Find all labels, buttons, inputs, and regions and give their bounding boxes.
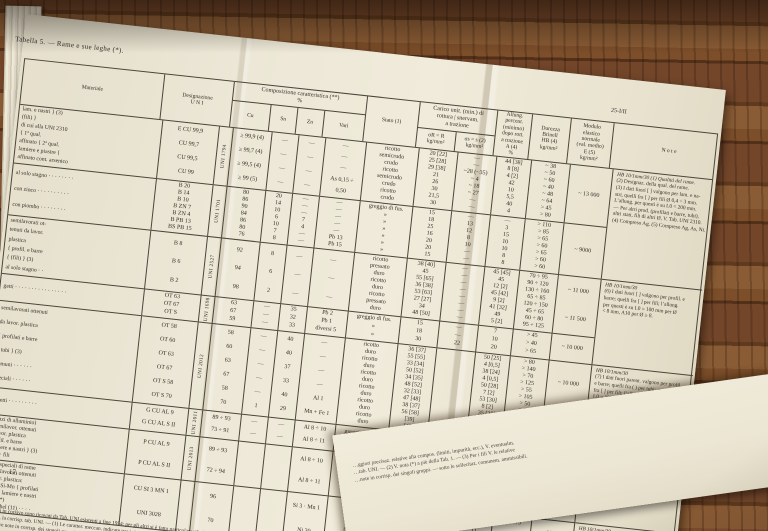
cell-line: —: [319, 354, 326, 362]
cell-line: 70: [220, 400, 227, 408]
cell-durezza: ~ 38~ 50~ 60~ 40~ 48~ 64> 45> 80: [526, 160, 571, 222]
cell-line: —: [305, 168, 312, 176]
cell-line: —: [259, 348, 266, 356]
cell-line: 22: [453, 341, 460, 349]
cell-sigR: 38 [40]4555 [65]36 [38]53 [63]27 [27]344…: [402, 259, 447, 321]
cell-line: »: [370, 332, 374, 339]
cell-line: 1: [254, 403, 258, 410]
cell-line: ~ 11 000: [567, 287, 589, 296]
cell-line: —: [294, 272, 301, 280]
cell-sigS: ——~28 (~35)~ 4~ 18~ 27——: [452, 152, 497, 214]
cell-cu: 929498: [216, 238, 261, 300]
cell-line: 18: [416, 328, 423, 336]
cell-line: 4: [507, 208, 511, 215]
cell-desig: B 8B 6B 2: [145, 231, 208, 295]
cell-line: »: [371, 324, 375, 331]
cell-line: —: [260, 334, 267, 342]
cell-line: Al 1: [312, 396, 323, 404]
cell-line: 8: [271, 251, 275, 258]
cell-desig: OT 58OT 60OT 63OT 67OT S 58OT S 70: [133, 316, 199, 408]
cell-line: 92: [236, 247, 243, 255]
cell-line: 73 ÷ 91: [211, 427, 230, 436]
cell-line: ≥ 99 (5): [237, 175, 257, 184]
cell-line: 30: [430, 200, 437, 208]
page-mark: 25-I/II: [611, 108, 627, 116]
cell-sigR: 20 [22]25 [28]29 [38]21263021,530: [414, 148, 459, 210]
header-line: Sn: [280, 116, 287, 123]
header-line: kg/mm²: [426, 138, 444, 146]
cell-line: —: [318, 368, 325, 376]
cell-line: OT 60: [159, 337, 175, 346]
header-line: kg/mm²: [465, 143, 483, 151]
cell-line: ~ 11 500: [564, 315, 586, 324]
cell-line: 59: [229, 316, 236, 324]
cell-line: 67: [230, 308, 237, 316]
uni-number: UNI 1794: [219, 144, 228, 169]
cell-line: 98: [232, 284, 239, 292]
cell-line: BS PB 15: [168, 223, 192, 233]
cell-line: —: [330, 257, 337, 265]
cell-line: 40: [285, 351, 292, 359]
cell-line: OT S 70: [151, 392, 172, 401]
cell-line: —: [257, 362, 264, 370]
uni-number: UNI 1698: [202, 297, 211, 322]
cell-line: G CU AL S II: [141, 419, 175, 430]
cell-line: 89 ÷ 93: [208, 446, 227, 455]
cell-line: semilavorati ottenuti: [1, 305, 48, 317]
header-line: Stato (1): [382, 117, 402, 125]
cell-line: 15: [424, 251, 431, 259]
cell-line: —: [326, 294, 333, 302]
cell-cu: 80869084868076: [222, 187, 266, 242]
uni-number: UNI 1701: [213, 199, 222, 224]
col-header-allungamento: Allung.percent.(minimo)dopo rott.a trazi…: [493, 111, 533, 159]
cell-line: As 0,15 ÷: [330, 175, 354, 184]
cell-line: in getti · · · · · · · · ·: [0, 397, 37, 409]
cell-modulo: ~ 11 000~ 11 500: [553, 275, 602, 337]
cell-line: Al 8 ÷ 11: [298, 477, 321, 486]
cell-line: duro: [369, 305, 381, 313]
cell-zn: 353233: [278, 304, 308, 333]
cell-line: Al 8 ÷ 10: [300, 456, 323, 465]
cell-line: ≥ 99,5 (4): [237, 161, 261, 171]
cell-line: Pb 2: [322, 310, 334, 318]
cell-line: OT S 58: [153, 378, 174, 387]
note-block: HB 10/1mm/30(6) I dati fuori [ ] valgono…: [592, 280, 701, 376]
cell-line: > 60: [534, 263, 546, 271]
cell-vari: Al 8 ÷ 10Al 8 ÷ 11: [288, 447, 334, 495]
cell-mat: semilavorati ottenutida lavor. plastica{…: [0, 301, 142, 402]
cell-line: ~ 10 000: [561, 344, 583, 353]
cell-line: con piombo · · · · · · · ·: [12, 202, 66, 215]
cell-desig: E CU 99,9CU 99,7CU 99,5CU 99: [157, 120, 220, 184]
cell-line: Ni 30: [297, 527, 311, 531]
cell-modulo: ~ 10 000: [550, 334, 596, 365]
cell-line: 35: [290, 307, 297, 315]
cell-vari: —————Pb 13Pb 15: [314, 197, 360, 252]
cell-line: { (fili) } (3): [6, 255, 33, 265]
cell-line: 29: [279, 406, 286, 414]
cell-cu: ≥ 99,9 (4)≥ 99,7 (4)≥ 99,5 (4)≥ 99 (5): [228, 128, 273, 190]
cell-line: 76: [238, 231, 245, 239]
cell-line: —: [307, 155, 314, 163]
cell-sn: ——: [239, 415, 269, 444]
photo-scene: Tabella 5. — Rame e sue leghe (*). 25-I/…: [0, 0, 768, 531]
cell-line: —: [277, 179, 284, 187]
cell-line: 30: [415, 336, 422, 344]
header-line: Materiale: [81, 85, 103, 94]
page-title: Tabella 5. — Rame e sue leghe (*).: [15, 35, 124, 55]
cell-modulo: ~ 13 000: [565, 165, 614, 227]
cell-line: 48 [50]: [412, 309, 430, 318]
cell-line: B 6: [171, 259, 180, 267]
header-line: Vari: [339, 122, 349, 129]
cell-line: 0,50: [335, 187, 346, 195]
cell-line: 6: [269, 269, 273, 276]
cell-line: 67: [223, 372, 230, 380]
cell-line: 8: [272, 235, 276, 242]
cell-line: B 8: [173, 240, 182, 248]
cell-line: —: [292, 290, 299, 298]
cell-line: —: [263, 304, 270, 312]
cell-line: 72 ÷ 94: [206, 467, 225, 476]
cell-line: a trazione: [445, 121, 469, 130]
cell-line: —: [342, 143, 349, 151]
header-line: U N I: [190, 100, 203, 108]
cell-line: 94: [234, 265, 241, 273]
cell-line: 40: [281, 392, 288, 400]
cell-line: { tubi } (3): [0, 347, 22, 357]
cell-line: —: [262, 320, 269, 328]
cell-line: —: [455, 325, 462, 333]
cell-line: comuni · · · · · ·: [0, 361, 32, 372]
cell-line: —: [316, 382, 323, 390]
cell-line: al solo stagno · · · · · · · ·: [15, 169, 73, 182]
cell-vari: Si 3 · Mn 1Ni 30: [282, 492, 328, 531]
cell-line: CU 99: [178, 169, 195, 178]
cell-line: —: [328, 276, 335, 284]
cell-line: speciali · · · · · ·: [0, 375, 31, 386]
cell-line: 40: [287, 337, 294, 345]
cell-line: —: [454, 333, 461, 341]
cell-cu: 636759: [213, 297, 255, 327]
cell-line: OT 58: [161, 323, 177, 332]
cell-line: 60: [226, 344, 233, 352]
cell-line: 8: [501, 260, 505, 267]
uni-number: UNI 2527: [207, 254, 216, 279]
cell-line: 5 [2]: [490, 318, 502, 326]
cell-line: 63: [231, 300, 238, 308]
header-line: kg/mm²: [539, 144, 557, 152]
cell-line: %: [297, 98, 303, 105]
cell-line: ~ 13 000: [578, 191, 600, 200]
uni-number: UNI 2012: [196, 354, 205, 379]
cell-line: —: [250, 431, 257, 439]
cell-line: 15: [416, 320, 423, 328]
cell-line: —: [463, 256, 470, 264]
cell-line: 33: [288, 323, 295, 331]
cell-stato: ricottopressatoduroricottoduroricottopre…: [349, 253, 408, 316]
cell-line: con zinco · · · · · · · · · ·: [14, 186, 70, 199]
cell-line: > 40: [525, 340, 537, 348]
cell-line: —: [468, 204, 475, 212]
cell-line: CU 99,5: [177, 155, 198, 164]
cell-line: 63: [224, 358, 231, 366]
cell-sigS: —1312810——: [447, 211, 491, 266]
cell-line: —: [296, 253, 303, 261]
cell-line: —: [456, 314, 463, 322]
cell-line: —: [280, 152, 287, 160]
cell-line: plastica: [8, 236, 26, 245]
uni-number: UNI 2011: [190, 410, 199, 434]
header-line: Zn: [307, 119, 314, 126]
col-header-designazione: DesignazioneU N I: [160, 74, 234, 126]
cell-line: ~ 9000: [574, 246, 591, 255]
cell-line: da lavor. plastica: [0, 319, 38, 330]
cell-line: —: [262, 312, 269, 320]
cell-sigS: ————————: [440, 263, 485, 325]
cell-stato: greggio di fus.»»»»»»: [355, 201, 413, 257]
cell-durezza: 70 ÷ 9590 ÷ 120130 ÷ 16065 ÷ 85120 ÷ 150…: [514, 271, 559, 333]
cell-line: 96: [210, 493, 217, 501]
uni-number: UNI 2013: [186, 446, 195, 471]
cell-sigR: 151830: [399, 317, 441, 347]
cell-line: 33: [282, 378, 289, 386]
cell-line: ≥ 99,9 (4): [240, 133, 264, 143]
cell-desig: P CU AL 9P CU AL S II: [125, 429, 186, 479]
cell-line: UNI 3028: [136, 510, 161, 520]
cell-line: getti · · · · · · · · · · · · · · · ·: [3, 284, 67, 298]
cell-line: —: [276, 434, 283, 442]
note-block: HB 10/1mm/30 (1) Qualità del rame.(2) De…: [602, 169, 714, 290]
cell-line: 7: [493, 329, 497, 336]
cell-cu: 89 ÷ 9372 ÷ 94: [196, 437, 240, 485]
cell-stato: ricottosemicrudocrudoricottosemicrudocru…: [361, 142, 420, 205]
cell-line: 58: [221, 386, 228, 394]
col-header-vari: Vari: [322, 111, 365, 141]
col-header-cu: Cu: [230, 101, 272, 131]
cell-line: »: [380, 246, 384, 253]
cell-line: Si 3 · Mn 1: [292, 502, 320, 512]
cell-line: 58: [227, 330, 234, 338]
col-header-zn: Zn: [296, 108, 326, 137]
cell-cu: 89 ÷ 9373 ÷ 91: [200, 410, 242, 440]
cell-zn: [256, 489, 288, 531]
cell-durezza: > 110> 85> 65> 60> 65> 60> 60: [520, 219, 564, 274]
cell-line: Al 8 ÷ 10: [303, 425, 326, 434]
cell-line: 95 ÷ 125: [522, 321, 544, 330]
col-header-durezza: DurezzaBrinellHB (4)kg/mm²: [528, 114, 572, 163]
cell-line: P CU AL 9: [143, 439, 170, 449]
cell-line: E CU 99,9: [177, 126, 203, 136]
cell-line: crudo: [380, 194, 394, 202]
cell-line: OT S: [164, 309, 177, 317]
col-header-carico: Carico unit. (min.) dirottura | snervam.…: [416, 102, 498, 155]
header-line: Cu: [247, 112, 254, 119]
cell-line: 70: [207, 518, 214, 526]
cell-sigS: ——22: [437, 321, 479, 351]
cell-line: P CU AL S II: [138, 460, 171, 470]
cell-line: 2: [267, 288, 271, 295]
cell-line: ~ 10 000: [557, 380, 579, 389]
cell-line: Pb 1: [321, 318, 333, 326]
cell-line: 10: [491, 337, 498, 345]
cell-line: OT 67: [156, 365, 172, 374]
header-line: %: [508, 150, 513, 157]
cell-allung: 71020: [476, 326, 514, 356]
cell-line: { profilati e barre: [0, 333, 38, 344]
cell-line: CU SI 3 MN 1: [133, 485, 169, 496]
cell-line: 20: [490, 345, 497, 353]
cell-line: Mn + Fe 1: [304, 409, 330, 419]
cell-line: —: [278, 166, 285, 174]
cell-vari: ———: [308, 248, 355, 310]
cell-line: Pb 15: [328, 241, 343, 249]
cell-line: —: [341, 154, 348, 162]
cell-line: —: [340, 165, 347, 173]
fold-text-line: …note in corrisp. dei singoli gruppi. — …: [354, 418, 768, 485]
cell-line: —: [308, 141, 315, 149]
cell-desig: B 20B 14B 10B ZN 7B ZN 4B PB 13BS PB 15: [151, 179, 213, 236]
cell-line: Al 8 ÷ 11: [302, 437, 325, 446]
cell-line: 37: [284, 364, 291, 372]
page-number: 17.: [9, 468, 18, 476]
cell-line: —: [254, 389, 261, 397]
cell-line: —: [278, 422, 285, 430]
cell-line: > 80: [539, 212, 551, 220]
cell-line: B 2: [169, 277, 178, 285]
cell-line: > 45: [526, 332, 538, 340]
cell-line: —: [281, 138, 288, 146]
cell-durezza: > 45> 40> 65: [511, 329, 553, 359]
cell-line: —: [321, 340, 328, 348]
cell-modulo: ~ 9000: [559, 223, 607, 278]
cell-sigR: 15182516202015: [408, 207, 452, 262]
cell-line: —: [298, 238, 305, 246]
header-line: N o t e: [661, 148, 677, 156]
cell-line: CU 99,7: [178, 141, 199, 150]
cell-line: —: [251, 419, 258, 427]
cell-cu: 9670: [190, 482, 234, 531]
cell-line: diversi 5: [315, 326, 336, 335]
cell-sn: ———: [252, 301, 282, 330]
cell-line: al solo stagno · ·: [5, 264, 43, 275]
cell-zn: ——: [266, 418, 296, 447]
cell-vari: Al 8 ÷ 10Al 8 ÷ 11: [293, 420, 337, 450]
cell-line: OT 63: [158, 351, 174, 360]
cell-line: —: [256, 375, 263, 383]
header-line: kg/mm²: [580, 155, 598, 163]
cell-line: —: [304, 182, 311, 190]
cell-line: duro: [357, 418, 369, 426]
cell-line: 32: [289, 315, 296, 323]
cell-vari: Pb 2Pb 1diversi 5: [305, 307, 349, 337]
cell-line: G CU AL 9: [146, 408, 174, 418]
col-header-sn: Sn: [269, 105, 299, 134]
cell-stato: ricottoduroricottoduroricottoduroricotto…: [337, 338, 399, 429]
cell-line: ≥ 99,7 (4): [238, 147, 262, 157]
cell-line: > 65: [525, 348, 537, 356]
col-header-modulo: Moduloelasticonormale(val. medio)E (5)kg…: [567, 119, 615, 168]
cell-line: 89 ÷ 93: [212, 415, 231, 424]
cell-allung: —315101088: [485, 215, 525, 269]
cell-vari: ———As 0,15 ÷0,50: [320, 138, 367, 200]
col-header-stato: Stato (1): [363, 96, 421, 146]
